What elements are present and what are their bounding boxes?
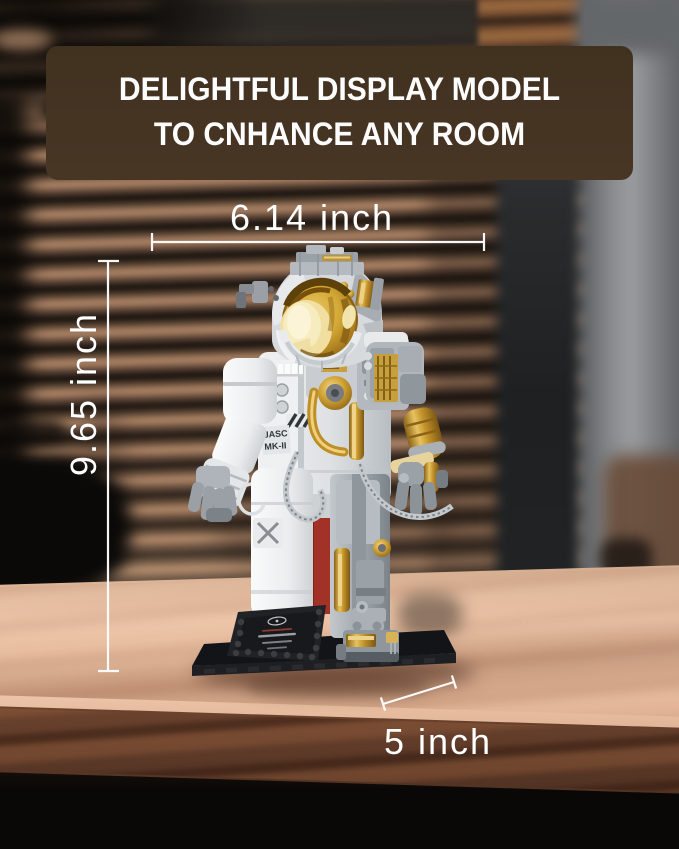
svg-text:MK-II: MK-II xyxy=(264,440,287,452)
svg-text:JASC: JASC xyxy=(263,428,288,440)
